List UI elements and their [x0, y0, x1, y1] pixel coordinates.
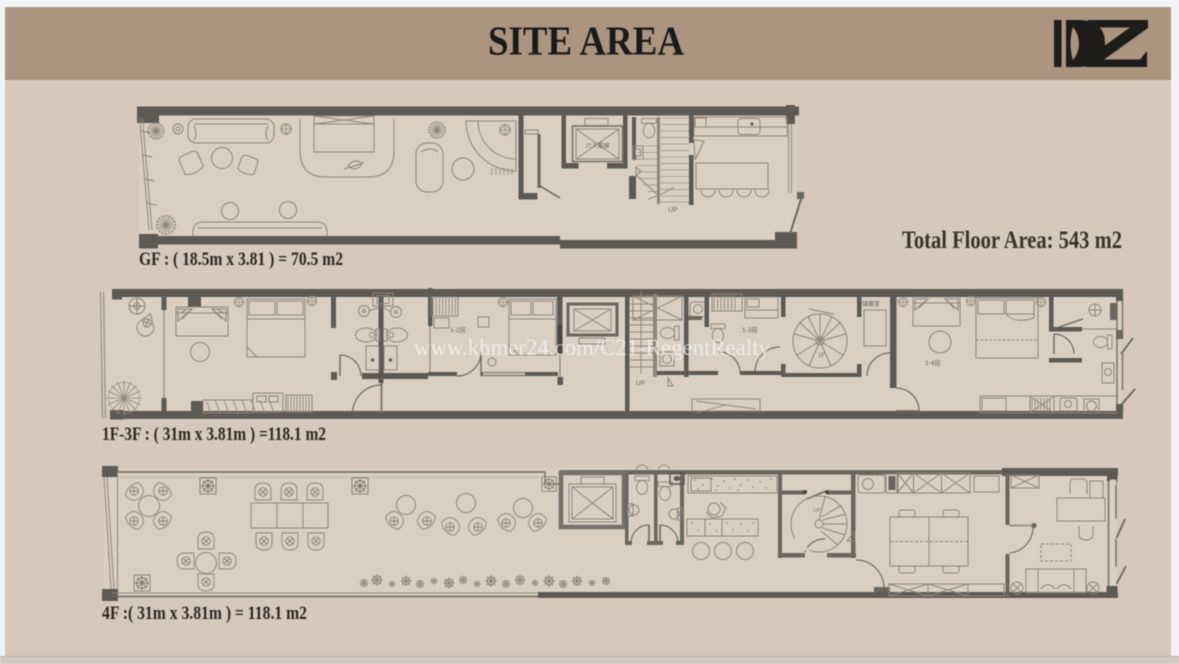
svg-text:六人電梯: 六人電梯 — [585, 142, 609, 150]
svg-text:SITE AREA: SITE AREA — [488, 18, 684, 64]
svg-text:GF : ( 18.5m x 3.81 ) = 70.5 m: GF : ( 18.5m x 3.81 ) = 70.5 m2 — [139, 249, 343, 270]
svg-text:UP: UP — [668, 207, 678, 214]
svg-text:1-4房: 1-4房 — [925, 358, 941, 367]
svg-text:1-3房: 1-3房 — [742, 325, 758, 334]
svg-text:www.khmer24.com/C21-RegentReal: www.khmer24.com/C21-RegentRealty — [414, 335, 770, 360]
svg-text:UP: UP — [636, 380, 645, 387]
svg-text:Total Floor Area: 543 m2: Total Floor Area: 543 m2 — [902, 227, 1122, 254]
svg-text:UP: UP — [813, 508, 821, 514]
svg-text:儲藏室: 儲藏室 — [862, 300, 880, 308]
svg-text:1F: 1F — [818, 353, 825, 359]
svg-text:1-2房: 1-2房 — [450, 325, 466, 334]
svg-text:4F :( 31m x 3.81m ) = 118.1 m2: 4F :( 31m x 3.81m ) = 118.1 m2 — [102, 603, 307, 624]
svg-text:1F-3F : ( 31m x 3.81m ) =118.1: 1F-3F : ( 31m x 3.81m ) =118.1 m2 — [102, 424, 326, 445]
